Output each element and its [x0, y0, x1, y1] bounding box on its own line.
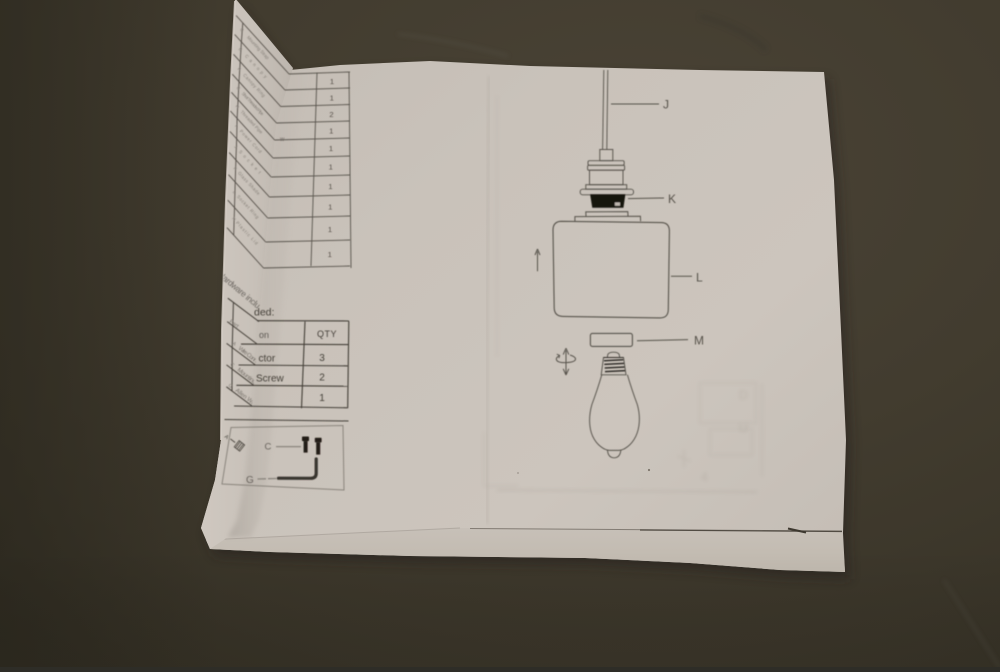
- svg-text:1: 1: [330, 77, 334, 86]
- svg-text:G: G: [246, 475, 254, 486]
- svg-text:1: 1: [328, 250, 332, 259]
- svg-text:L: L: [696, 271, 703, 285]
- svg-text:QTY: QTY: [317, 329, 337, 339]
- svg-text:U: U: [739, 421, 748, 435]
- svg-text:1: 1: [319, 393, 325, 404]
- svg-text:M: M: [694, 334, 704, 348]
- svg-text:J: J: [663, 98, 669, 112]
- svg-text:1: 1: [328, 182, 332, 191]
- svg-text:on: on: [259, 330, 269, 340]
- svg-text:1: 1: [330, 94, 334, 103]
- svg-text:1: 1: [328, 203, 332, 212]
- svg-text:1: 1: [329, 163, 333, 172]
- svg-text:1: 1: [329, 144, 333, 153]
- svg-text:4: 4: [701, 470, 708, 484]
- svg-text:C: C: [265, 442, 272, 453]
- svg-text:1: 1: [329, 127, 333, 136]
- svg-text:2: 2: [319, 373, 325, 384]
- svg-text:ctor: ctor: [259, 354, 276, 365]
- svg-text:w: w: [279, 137, 285, 143]
- svg-text:2: 2: [329, 110, 333, 119]
- svg-text:K: K: [668, 192, 676, 206]
- svg-text:3: 3: [319, 353, 325, 364]
- svg-text:Screw: Screw: [256, 374, 285, 385]
- svg-text:1: 1: [328, 225, 332, 234]
- svg-text:D: D: [739, 388, 748, 402]
